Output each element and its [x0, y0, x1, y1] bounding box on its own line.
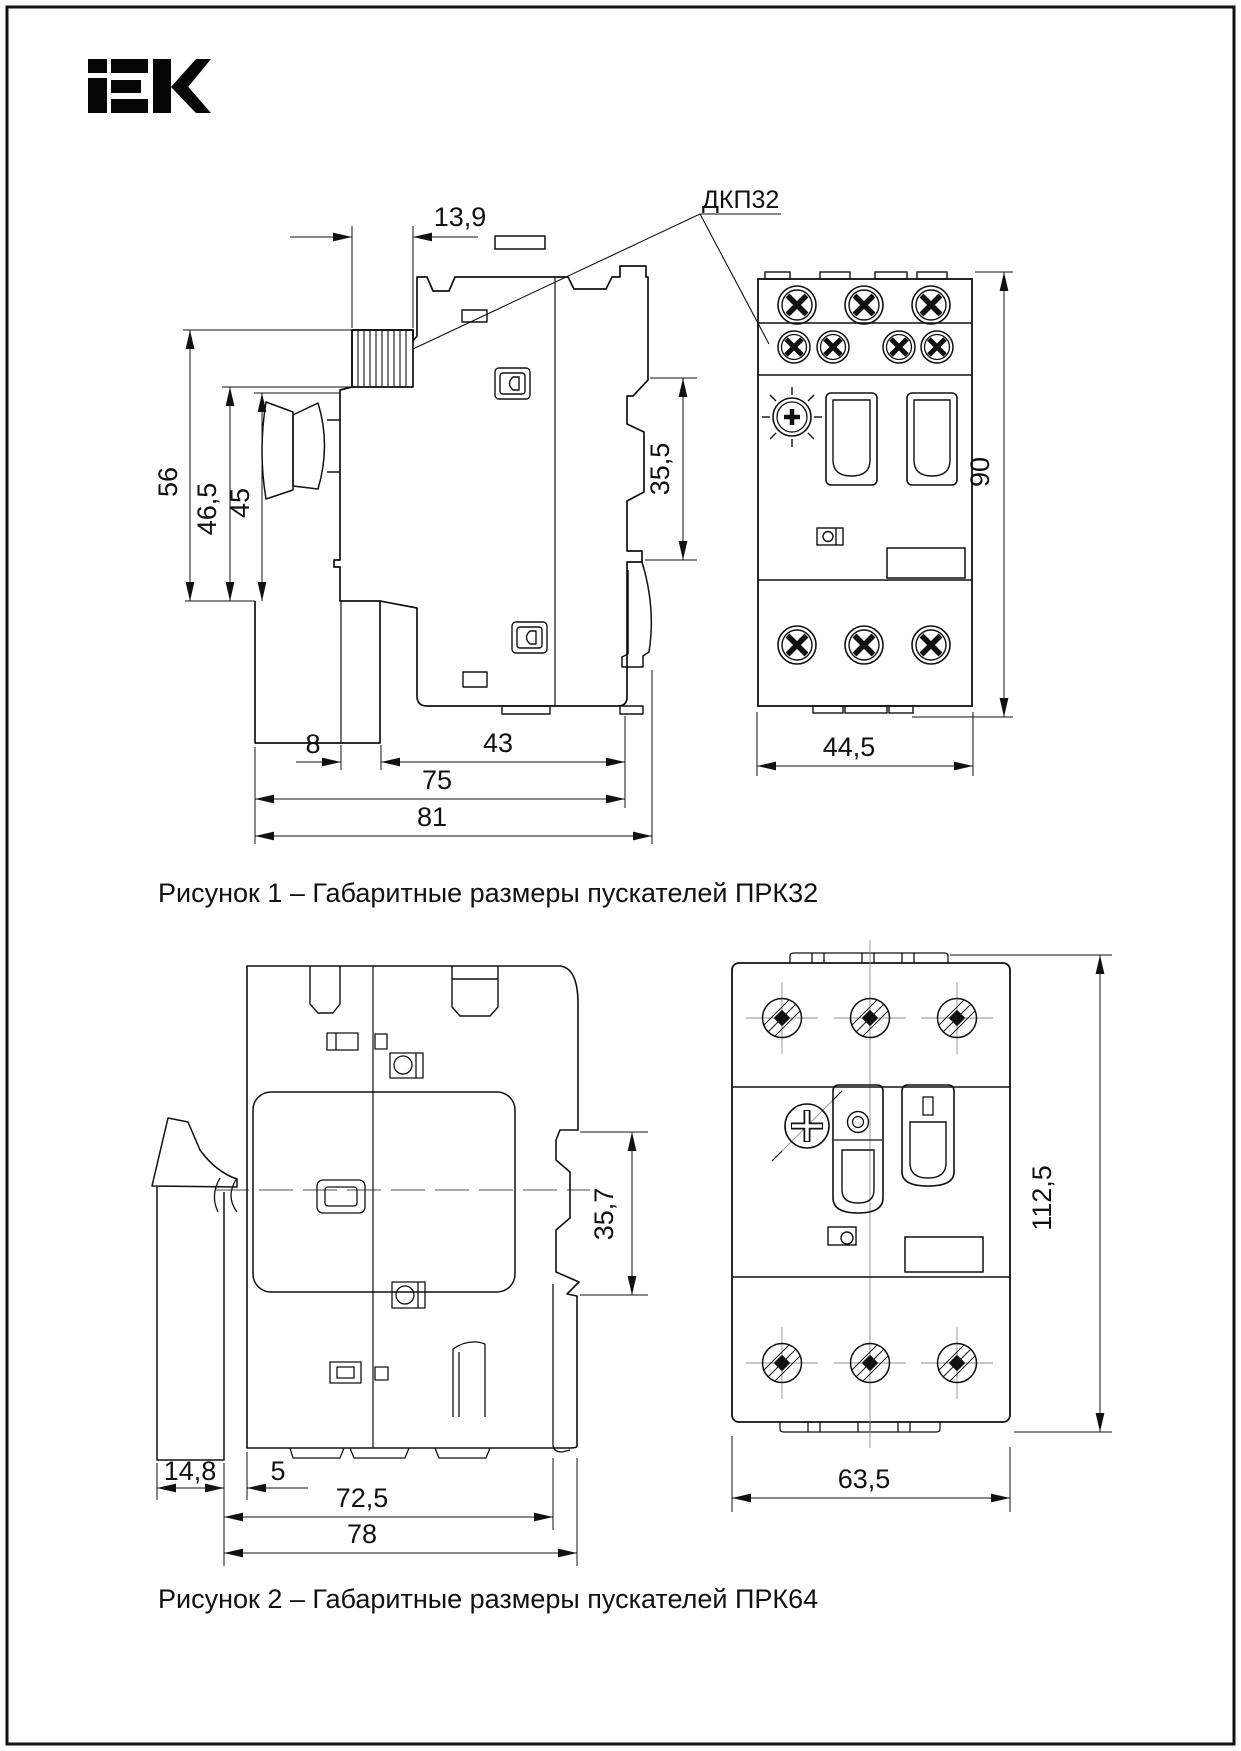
- dim-label: 81: [417, 802, 447, 832]
- dim-label: 5: [270, 1456, 285, 1486]
- dim-label: 72,5: [336, 1483, 389, 1513]
- dim-label: 75: [422, 765, 452, 795]
- callout-label: ДКП32: [702, 186, 779, 214]
- dim-label: 78: [347, 1519, 377, 1549]
- dim-label: 14,8: [164, 1456, 217, 1486]
- dim-label: 90: [965, 457, 995, 487]
- dim-label: 56: [153, 467, 183, 497]
- dim-label: 112,5: [1027, 1165, 1057, 1231]
- dim-label: 43: [483, 728, 513, 758]
- fig2-caption: Рисунок 2 – Габаритные размеры пускателе…: [158, 1584, 818, 1614]
- dim-label: 46,5: [192, 483, 222, 536]
- dim-label: 35,7: [589, 1188, 619, 1241]
- dim-label: 63,5: [838, 1464, 891, 1494]
- fig1-caption: Рисунок 1 – Габаритные размеры пускателе…: [158, 878, 818, 908]
- technical-drawing: 13,9 56 46,5 45 35,5 8: [0, 0, 1241, 1751]
- dim-label: 45: [225, 488, 255, 518]
- drawing-sheet: iEK: [0, 0, 1241, 1751]
- dim-label: 35,5: [645, 443, 675, 496]
- dim-label: 8: [305, 729, 320, 759]
- dim-label: 44,5: [823, 732, 876, 762]
- dim-label: 13,9: [434, 202, 487, 232]
